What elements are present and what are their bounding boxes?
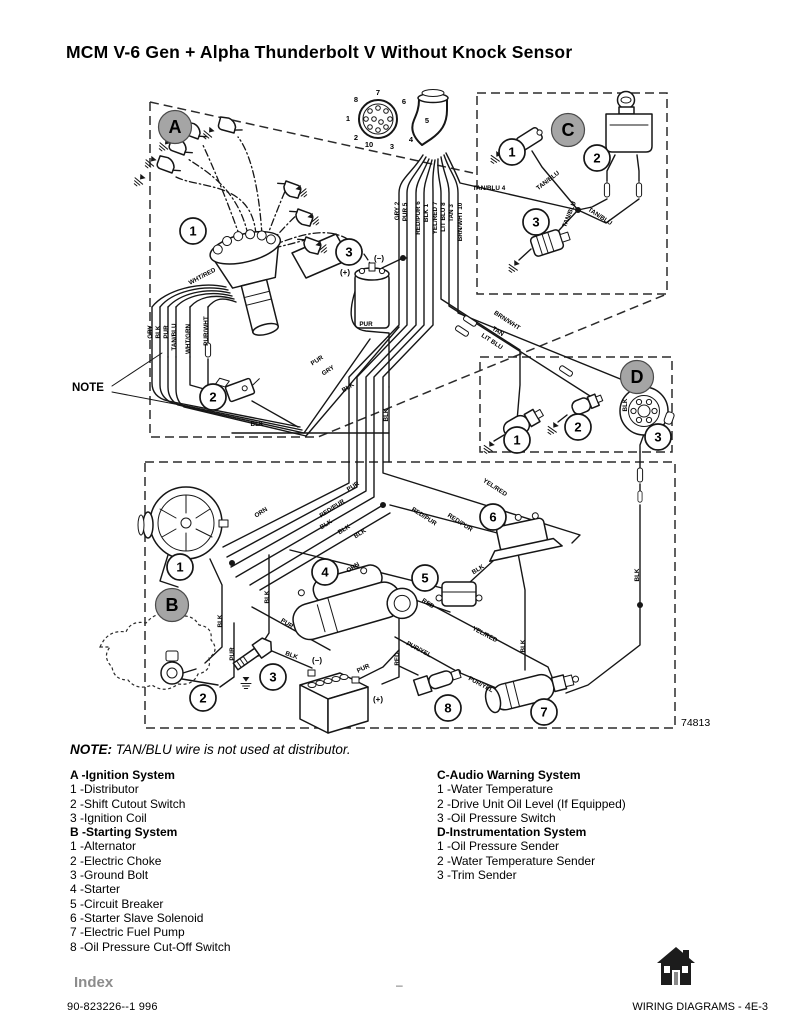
wire-label: PUR xyxy=(163,325,170,339)
connector-pin-number: 3 xyxy=(390,142,394,151)
connector-pin-number: 10 xyxy=(365,140,373,149)
wire-label: GRY xyxy=(147,324,154,338)
legend-heading-b: B -Starting System xyxy=(70,825,437,839)
svg-text:C: C xyxy=(562,120,575,140)
callout-c-1: 1 xyxy=(499,139,525,165)
connector-pin-number: 4 xyxy=(409,135,414,144)
legend-heading-d: D-Instrumentation System xyxy=(437,825,760,839)
callout-c-2: 2 xyxy=(584,145,610,171)
svg-text:A: A xyxy=(169,117,182,137)
legend-item: 6 -Starter Slave Solenoid xyxy=(70,911,437,925)
callout-b-8: 8 xyxy=(435,695,461,721)
svg-text:1: 1 xyxy=(176,560,183,575)
callout-b-6: 6 xyxy=(480,504,506,530)
callout-b-7: 7 xyxy=(531,699,557,725)
legend-item: 5 -Circuit Breaker xyxy=(70,897,437,911)
legend-item: 2 -Water Temperature Sender xyxy=(437,854,760,868)
electric-choke xyxy=(100,614,215,690)
legend-heading-a: A -Ignition System xyxy=(70,768,437,782)
wire-label: RED/PUR 6 xyxy=(415,201,422,235)
svg-text:1: 1 xyxy=(508,145,515,160)
wire-label: GRY 2 xyxy=(394,201,401,220)
page-title: MCM V-6 Gen + Alpha Thunderbolt V Withou… xyxy=(66,42,572,63)
footer-doc-number: 90-823226--1 996 xyxy=(67,1001,158,1013)
section-circle-d: D xyxy=(621,361,654,394)
wire-label: PUR xyxy=(356,662,371,674)
wire-label: (−) xyxy=(374,254,384,263)
molded-elbow-connector xyxy=(412,90,448,146)
wire-label: (+) xyxy=(373,695,383,704)
legend-item: 1 -Oil Pressure Sender xyxy=(437,839,760,853)
wire-label: BLK 1 xyxy=(423,203,430,222)
svg-text:1: 1 xyxy=(513,433,520,448)
svg-text:2: 2 xyxy=(574,420,581,435)
legend-item: 2 -Shift Cutout Switch xyxy=(70,797,437,811)
callout-a-2: 2 xyxy=(200,384,226,410)
callout-a-1: 1 xyxy=(180,218,206,244)
svg-text:5: 5 xyxy=(421,571,428,586)
wire-label: RED xyxy=(420,597,435,610)
wiring-diagram: NOTE GRY 2PUR 5RED/PUR 6BLK 1YEL/RED 7LI… xyxy=(0,85,800,735)
svg-text:3: 3 xyxy=(532,215,539,230)
wire-label: BLK xyxy=(217,614,224,627)
legend-item: 4 -Starter xyxy=(70,882,437,896)
wire-label: BLK xyxy=(155,325,162,338)
wire-label: BLK xyxy=(353,527,368,540)
note-pointer-label: NOTE xyxy=(72,382,104,394)
wire-label: ORN xyxy=(253,506,269,520)
svg-text:3: 3 xyxy=(654,430,661,445)
connector-pin-number: 5 xyxy=(425,116,429,125)
harness-connector xyxy=(359,100,397,138)
wire-label: TAN/BLU xyxy=(587,206,614,227)
wire-label: YEL/RED xyxy=(471,625,499,644)
connector-pin-number: 7 xyxy=(376,88,380,97)
note-line: NOTE: TAN/BLU wire is not used at distri… xyxy=(70,742,351,757)
wire-label: PUR/YEL xyxy=(467,675,495,694)
wire-label: PUR/WHT xyxy=(203,316,210,346)
legend-item: 8 -Oil Pressure Cut-Off Switch xyxy=(70,940,437,954)
legend-item: 3 -Ignition Coil xyxy=(70,811,437,825)
wire-label: PUR xyxy=(229,647,236,661)
section-circle-b: B xyxy=(156,589,189,622)
oil-reservoir xyxy=(606,92,652,153)
wire-label: BLK xyxy=(383,408,390,421)
legend-item: 1 -Water Temperature xyxy=(437,782,760,796)
wire-label: BLK xyxy=(520,639,527,652)
callout-d-2: 2 xyxy=(565,414,591,440)
legend-item: 7 -Electric Fuel Pump xyxy=(70,925,437,939)
svg-text:D: D xyxy=(631,367,644,387)
house-icon xyxy=(655,946,697,988)
callout-a-3: 3 xyxy=(336,239,362,265)
legend-heading-c: C-Audio Warning System xyxy=(437,768,760,782)
connector-pin-number: 6 xyxy=(402,97,406,106)
wire-label: BLK xyxy=(251,421,264,428)
svg-text:4: 4 xyxy=(321,565,329,580)
legend-item: 3 -Oil Pressure Switch xyxy=(437,811,760,825)
svg-text:2: 2 xyxy=(199,691,206,706)
legend-right-column: C-Audio Warning System 1 -Water Temperat… xyxy=(437,768,760,954)
wire-label: BLK xyxy=(622,398,629,411)
wire-label: BRN/WHT 10 xyxy=(457,202,464,241)
svg-text:6: 6 xyxy=(489,510,496,525)
water-temperature-sender xyxy=(570,391,604,416)
manual-page: MCM V-6 Gen + Alpha Thunderbolt V Withou… xyxy=(0,0,800,1035)
callout-d-3: 3 xyxy=(645,424,671,450)
wire-label: YEL/RED 7 xyxy=(432,201,439,234)
wire-label: GRY xyxy=(321,364,337,378)
svg-text:3: 3 xyxy=(269,670,276,685)
callout-c-3: 3 xyxy=(523,209,549,235)
callout-b-4: 4 xyxy=(312,559,338,585)
wire-label: BLK xyxy=(264,590,271,603)
legend-item: 3 -Trim Sender xyxy=(437,868,760,882)
wire-label: (+) xyxy=(340,268,350,277)
callout-d-1: 1 xyxy=(504,427,530,453)
note-text: TAN/BLU wire is not used at distributor. xyxy=(112,742,351,757)
wire-label: TAN/BLU 4 xyxy=(473,185,506,192)
footer-center-mark: – xyxy=(396,978,403,992)
legend: A -Ignition System 1 -Distributor 2 -Shi… xyxy=(70,768,760,954)
svg-text:3: 3 xyxy=(345,245,352,260)
section-borders xyxy=(145,93,675,728)
legend-item: 2 -Drive Unit Oil Level (If Equipped) xyxy=(437,797,760,811)
wire-label: PUR 5 xyxy=(402,202,409,221)
wire-label: PUR xyxy=(310,354,325,367)
wire-label: TAN 3 xyxy=(448,204,455,222)
wire-label: (−) xyxy=(312,656,322,665)
svg-text:2: 2 xyxy=(593,151,600,166)
wire-label: WHT/RED xyxy=(188,266,218,286)
wire-label: BLK xyxy=(634,568,641,581)
callout-b-5: 5 xyxy=(412,565,438,591)
svg-text:1: 1 xyxy=(189,224,196,239)
wire-label: TAN/BLU xyxy=(561,200,578,228)
section-circle-a: A xyxy=(159,111,192,144)
wire-label: PUR xyxy=(346,480,361,493)
legend-item: 1 -Distributor xyxy=(70,782,437,796)
battery xyxy=(300,670,368,733)
footer-index-label: Index xyxy=(74,974,113,991)
wire-label: LIT BLU 8 xyxy=(440,202,447,232)
circuit-breaker xyxy=(436,582,482,606)
svg-text:8: 8 xyxy=(444,701,451,716)
ignition-coil xyxy=(355,263,389,328)
svg-text:B: B xyxy=(166,595,179,615)
wire-label: WHT/GRN xyxy=(185,324,192,355)
diagram-number: 74813 xyxy=(681,717,710,729)
connector-pin-number: 2 xyxy=(354,133,358,142)
svg-text:2: 2 xyxy=(209,390,216,405)
wire-label: PUR/YEL xyxy=(405,640,433,659)
connector-pin-number: 1 xyxy=(346,114,350,123)
callout-b-3: 3 xyxy=(260,664,286,690)
wire-label: RED/PUR xyxy=(446,512,474,534)
legend-item: 3 -Ground Bolt xyxy=(70,868,437,882)
note-label: NOTE: xyxy=(70,742,112,757)
callout-b-1: 1 xyxy=(167,554,193,580)
svg-text:7: 7 xyxy=(540,705,547,720)
wire-label: TAN/BLU xyxy=(535,169,561,192)
wire-label: BLK xyxy=(319,518,334,531)
wire-label: YEL/RED xyxy=(481,477,508,498)
wire-label: PUR xyxy=(359,321,373,328)
connector-pin-number: 8 xyxy=(354,95,358,104)
legend-item: 1 -Alternator xyxy=(70,839,437,853)
wire-label: RED xyxy=(394,652,401,666)
legend-left-column: A -Ignition System 1 -Distributor 2 -Shi… xyxy=(70,768,437,954)
section-letter-circles: ACDB xyxy=(156,111,654,622)
callout-b-2: 2 xyxy=(190,685,216,711)
footer-page-ref: WIRING DIAGRAMS - 4E-3 xyxy=(632,1001,768,1013)
section-circle-c: C xyxy=(552,114,585,147)
legend-item: 2 -Electric Choke xyxy=(70,854,437,868)
wire-label: TAN/BLU xyxy=(171,323,178,351)
